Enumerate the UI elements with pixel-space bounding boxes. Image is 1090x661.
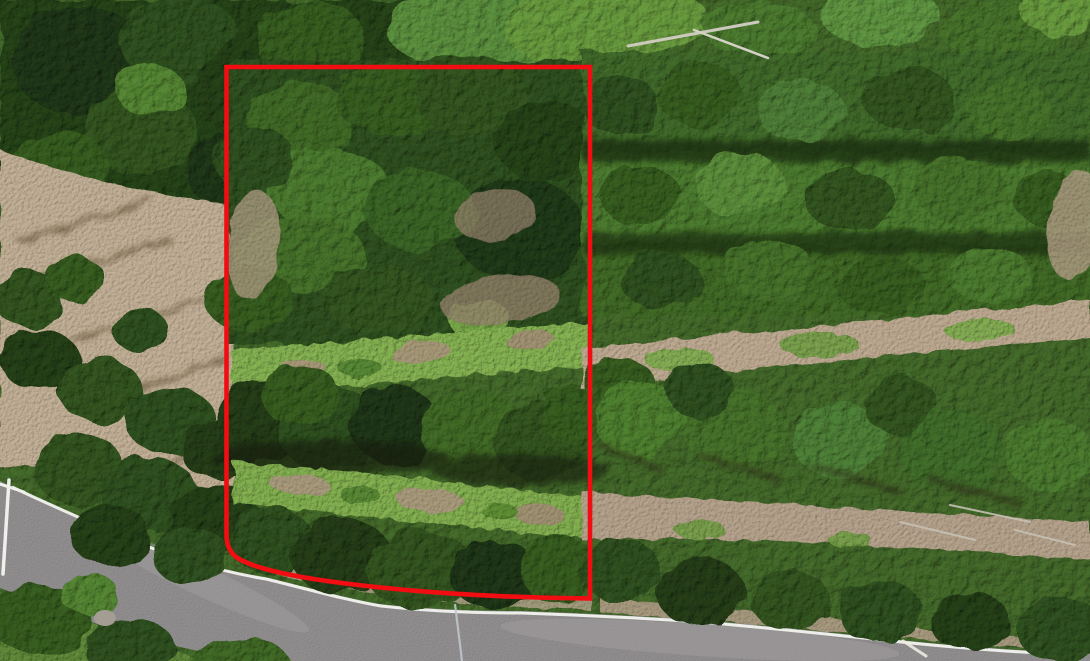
tree-crown <box>930 592 1010 652</box>
tree-crown <box>656 558 744 626</box>
tree-crown <box>260 365 340 425</box>
tree-crown <box>948 247 1032 303</box>
aerial-photo-stage <box>0 0 1090 661</box>
weed-clump <box>828 532 872 548</box>
tree-crown <box>862 377 938 433</box>
tree-crown <box>968 80 1052 140</box>
tree-crown <box>665 364 735 416</box>
weed-clump <box>338 358 382 378</box>
tree-crown <box>835 257 925 313</box>
tree-crown <box>755 80 845 140</box>
tree-crown <box>582 75 658 135</box>
tree-crown <box>112 308 168 352</box>
weed-clump <box>340 486 380 504</box>
tree-crown <box>152 525 228 585</box>
tree-crown <box>658 63 742 127</box>
tree-crown <box>695 153 785 217</box>
tree-crown <box>805 170 895 230</box>
weed-clump <box>780 332 860 358</box>
tree-crown <box>915 158 1005 222</box>
row-shadow <box>430 454 610 486</box>
parcel-interior <box>205 55 610 540</box>
tree-crown <box>750 570 830 630</box>
tree-crown <box>115 65 185 115</box>
weed-clump <box>675 521 725 539</box>
aerial-photo <box>0 0 1090 661</box>
row-shadow <box>582 140 1090 162</box>
rock <box>94 610 116 626</box>
tree-crown <box>70 505 150 565</box>
tree-crown <box>325 265 435 335</box>
weed-clump <box>944 318 1016 342</box>
tree-crown <box>495 98 595 182</box>
weed-clump <box>482 504 518 520</box>
tree-crown <box>838 580 922 644</box>
tree-crown <box>600 165 680 225</box>
tree-crown <box>620 252 700 308</box>
tree-crown <box>725 240 815 300</box>
tree-crown <box>45 256 105 304</box>
tree-crown <box>60 575 120 615</box>
row-shadow <box>582 232 1090 254</box>
tree-crown <box>865 68 955 132</box>
